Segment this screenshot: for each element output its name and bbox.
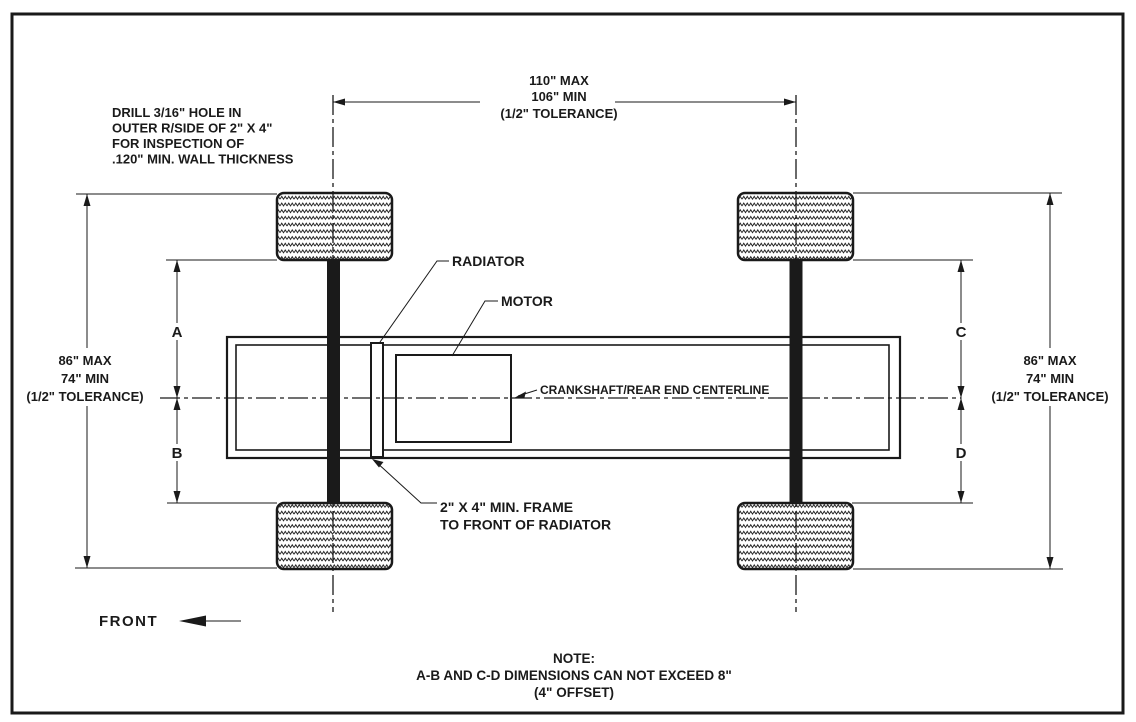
dim-arrow-icon bbox=[333, 99, 345, 106]
dim-arrow-icon bbox=[1047, 557, 1054, 569]
radiator-rect bbox=[371, 343, 383, 457]
wheelbase-min: 106" MIN bbox=[531, 89, 586, 104]
dim-arrow-icon bbox=[84, 556, 91, 568]
leader-arrow-icon bbox=[372, 459, 384, 468]
drill-note-line1: DRILL 3/16" HOLE IN bbox=[112, 105, 241, 120]
dim-arrow-icon bbox=[958, 386, 965, 398]
dim-arrow-icon bbox=[784, 99, 796, 106]
track-right-min: 74" MIN bbox=[1026, 371, 1074, 386]
offset-label-d: D bbox=[956, 445, 967, 462]
frame-note: 2" X 4" MIN. FRAME TO FRONT OF RADIATOR bbox=[440, 499, 611, 533]
track-left-min: 74" MIN bbox=[61, 371, 109, 386]
dim-arrow-icon bbox=[84, 194, 91, 206]
track-right-max: 86" MAX bbox=[1023, 353, 1076, 368]
track-left-max: 86" MAX bbox=[58, 353, 111, 368]
radiator-label: RADIATOR bbox=[452, 253, 525, 269]
wheel-rear-right bbox=[738, 503, 853, 569]
crankshaft-centerline-label: CRANKSHAFT/REAR END CENTERLINE bbox=[540, 383, 769, 397]
bottom-note-line3: (4" OFFSET) bbox=[534, 685, 614, 700]
dim-arrow-icon bbox=[958, 260, 965, 272]
front-label: FRONT bbox=[99, 613, 158, 630]
wheelbase-dimension-text: 110" MAX 106" MIN (1/2" TOLERANCE) bbox=[500, 73, 617, 121]
wheel-rear-left bbox=[738, 193, 853, 260]
front-direction-arrow-icon bbox=[179, 616, 206, 627]
wheelbase-tolerance: (1/2" TOLERANCE) bbox=[500, 106, 617, 121]
frame-note-line1: 2" X 4" MIN. FRAME bbox=[440, 499, 573, 515]
wheel-front-left bbox=[277, 193, 392, 260]
drill-note-line3: FOR INSPECTION OF bbox=[112, 136, 244, 151]
drill-note-line2: OUTER R/SIDE OF 2" X 4" bbox=[112, 121, 272, 136]
frame-note-leader bbox=[375, 461, 437, 503]
dim-arrow-icon bbox=[174, 386, 181, 398]
track-left-dimension-text: 86" MAX 74" MIN (1/2" TOLERANCE) bbox=[26, 353, 143, 404]
dim-arrow-icon bbox=[174, 398, 181, 410]
drill-note-line4: .120" MIN. WALL THICKNESS bbox=[112, 152, 294, 167]
wheelbase-max: 110" MAX bbox=[529, 73, 589, 88]
offset-label-b: B bbox=[172, 445, 183, 462]
track-right-tolerance: (1/2" TOLERANCE) bbox=[991, 389, 1108, 404]
radiator-leader bbox=[380, 261, 449, 342]
bottom-note-line1: NOTE: bbox=[553, 651, 595, 666]
frame-note-line2: TO FRONT OF RADIATOR bbox=[440, 517, 611, 533]
wheel-front-right bbox=[277, 503, 392, 569]
chassis-dimension-drawing: DRILL 3/16" HOLE IN OUTER R/SIDE OF 2" X… bbox=[0, 0, 1136, 722]
dim-arrow-icon bbox=[174, 491, 181, 503]
motor-label: MOTOR bbox=[501, 293, 553, 309]
bottom-note: NOTE: A-B AND C-D DIMENSIONS CAN NOT EXC… bbox=[416, 651, 732, 700]
offset-label-c: C bbox=[956, 324, 967, 341]
bottom-note-line2: A-B AND C-D DIMENSIONS CAN NOT EXCEED 8" bbox=[416, 668, 732, 683]
dim-arrow-icon bbox=[1047, 193, 1054, 205]
rear-axle bbox=[790, 260, 803, 503]
offset-label-a: A bbox=[172, 324, 183, 341]
dim-arrow-icon bbox=[958, 398, 965, 410]
drill-note: DRILL 3/16" HOLE IN OUTER R/SIDE OF 2" X… bbox=[112, 105, 294, 167]
track-right-dimension-text: 86" MAX 74" MIN (1/2" TOLERANCE) bbox=[991, 353, 1108, 404]
dim-arrow-icon bbox=[958, 491, 965, 503]
track-left-tolerance: (1/2" TOLERANCE) bbox=[26, 389, 143, 404]
front-axle bbox=[327, 260, 340, 503]
dim-arrow-icon bbox=[174, 260, 181, 272]
